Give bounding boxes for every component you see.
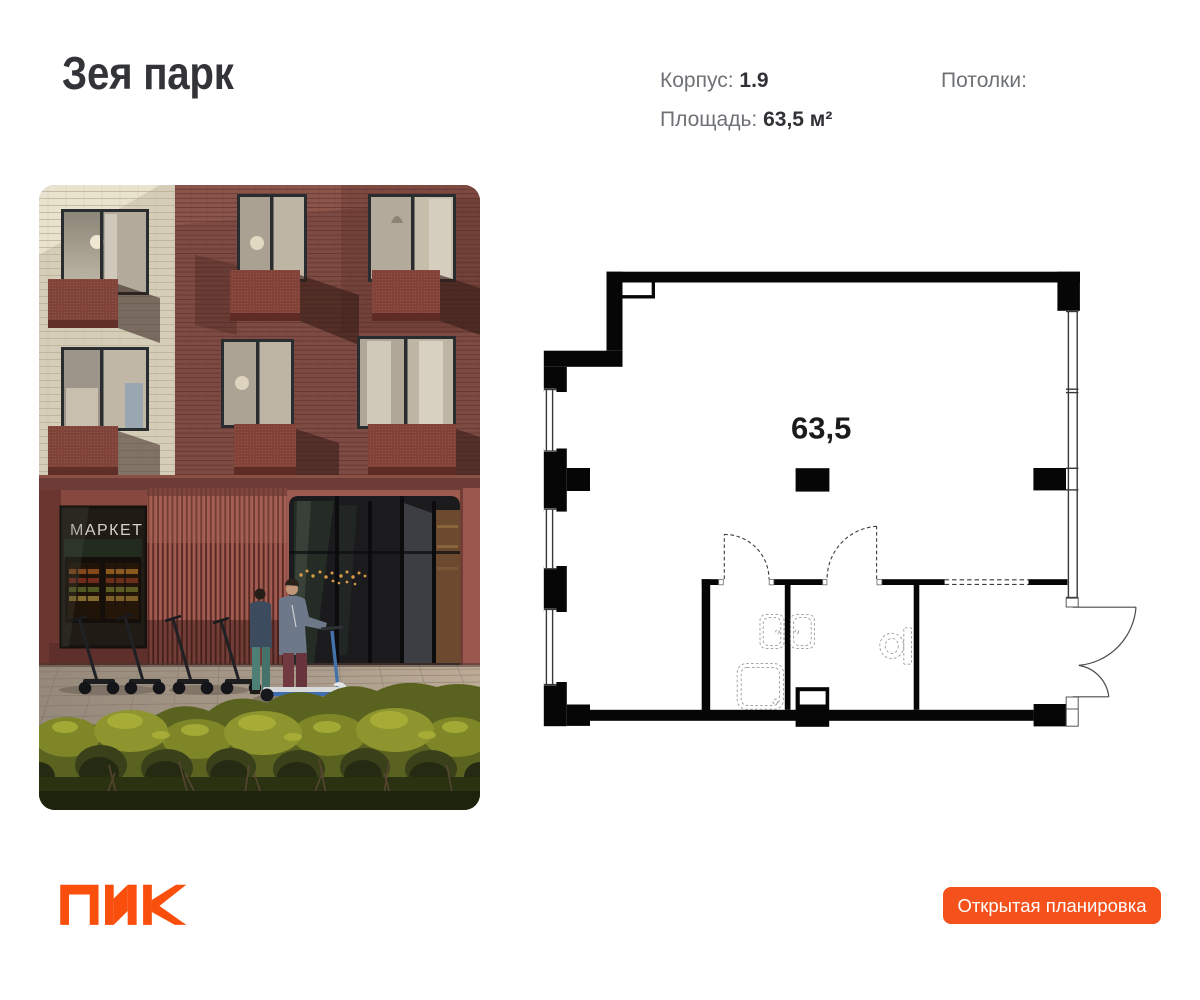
svg-text:63,5: 63,5 <box>791 411 851 446</box>
